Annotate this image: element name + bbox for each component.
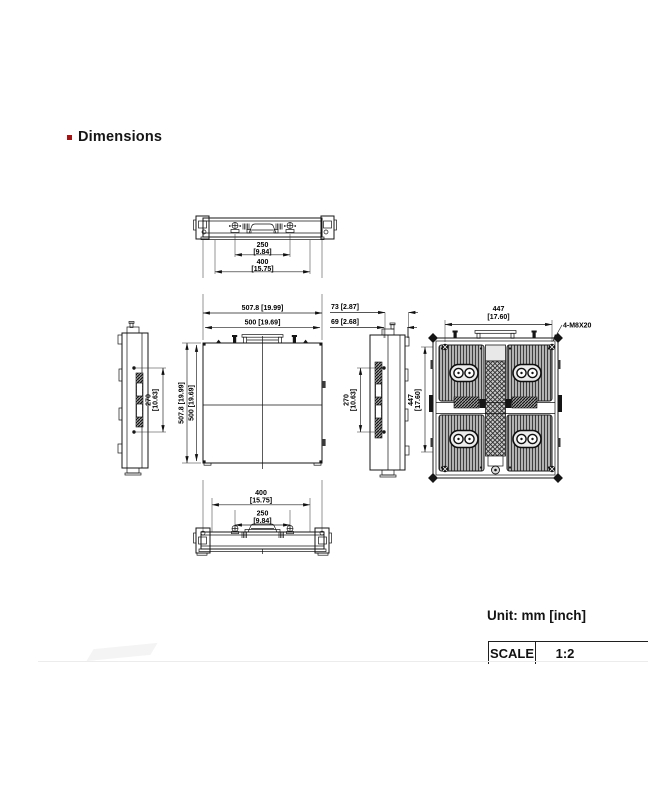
dim-left-270-mm: 270	[146, 394, 153, 406]
top-view-bolt-left	[229, 223, 241, 233]
left-side-view-body	[118, 322, 148, 476]
datasheet-page: { "page": { "heading": "Dimensions", "un…	[0, 0, 650, 794]
heading-bullet-icon	[67, 135, 72, 140]
front-view-dimensions: 507.8 [19.99] 500 [19.69] 507.8 [19.99] …	[179, 294, 323, 463]
dim-right-69: 69 [2.68]	[331, 319, 359, 326]
dim-rear-447h-in: [17.60]	[415, 389, 422, 411]
top-view-handle	[247, 224, 278, 233]
dim-left-270-in: [10.63]	[153, 389, 160, 411]
dim-bottom-250-mm: 250	[257, 511, 269, 518]
dim-front-height-inner: 500 [19.69]	[189, 385, 196, 421]
unit-note: Unit: mm [inch]	[487, 608, 586, 623]
rear-view-body	[428, 331, 563, 483]
dim-front-height-outer: 507.8 [19.99]	[179, 382, 186, 424]
left-side-view-drawing: 270 [10.63]	[113, 320, 175, 478]
dim-front-width-inner: 500 [19.69]	[245, 320, 281, 327]
top-view-dimensions: 250 [9.84] 400 [15.75]	[215, 234, 310, 274]
top-view-drawing: 250 [9.84] 400 [15.75]	[193, 212, 337, 278]
section-heading: Dimensions	[67, 129, 162, 145]
section-heading-label: Dimensions	[78, 129, 162, 145]
dim-front-width-outer: 507.8 [19.99]	[242, 305, 284, 312]
dim-top-400-in: [15.75]	[251, 266, 273, 273]
dim-bottom-400-mm: 400	[255, 490, 267, 497]
dim-top-250-in: [9.84]	[253, 249, 271, 256]
faint-watermark	[86, 643, 157, 661]
front-view-drawing: 507.8 [19.99] 500 [19.69] 507.8 [19.99] …	[170, 294, 346, 480]
rear-view-drawing: 447 [17.60] 4-M8X20 447 [17.60]	[405, 296, 650, 491]
top-view-bolt-right	[284, 223, 296, 233]
footer-divider	[38, 661, 648, 662]
dim-right-270-in: [10.63]	[351, 389, 358, 411]
dim-rear-447w-mm: 447	[493, 306, 505, 313]
dim-bottom-400-in: [15.75]	[250, 498, 272, 505]
front-view-body	[203, 335, 326, 469]
bottom-view-body	[194, 524, 332, 555]
rear-top-handle	[475, 331, 516, 339]
dim-right-73: 73 [2.87]	[331, 304, 359, 311]
bottom-view-drawing: 400 [15.75] 250 [9.84]	[190, 480, 340, 560]
right-side-view-body	[370, 323, 409, 477]
dim-rear-447w-in: [17.60]	[487, 314, 509, 321]
rear-bolt-callout: 4-M8X20	[563, 323, 592, 330]
dim-right-270-mm: 270	[344, 394, 351, 406]
